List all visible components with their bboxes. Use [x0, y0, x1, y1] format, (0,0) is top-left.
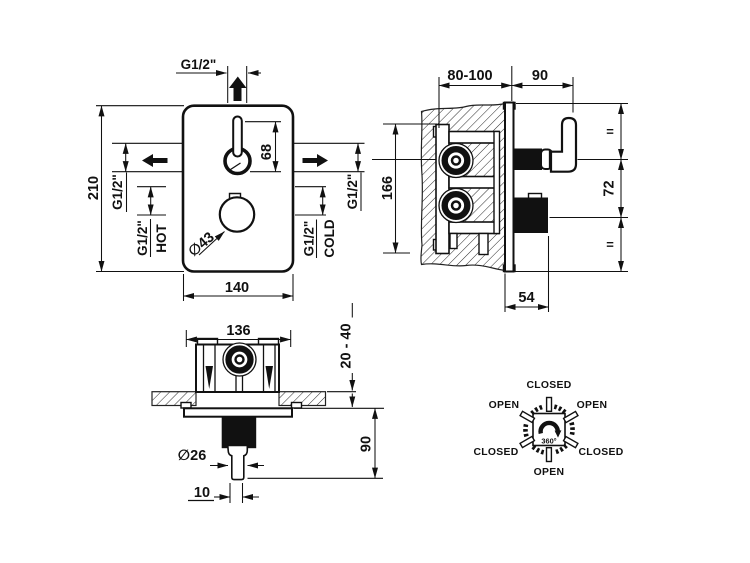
dim-knob-proj: 54 [518, 290, 534, 306]
dial-label-n: CLOSED [526, 380, 571, 391]
handle-base [513, 149, 542, 171]
dial-arc [525, 423, 526, 437]
dim-adjust-range: 20 - 40 [339, 323, 355, 368]
bottom-view: 136 ∅26 10 20 - 40 90 [152, 303, 384, 503]
frame-rail [449, 222, 499, 234]
dim-right-port: G1/2" [345, 174, 360, 210]
dim-left-supply: G1/2" [135, 220, 150, 256]
wall-band-right [279, 392, 326, 406]
frame-foot [450, 234, 457, 249]
lever-handle-side [551, 118, 576, 172]
dial-arc [554, 407, 566, 414]
technical-drawing: G1/2" 68 ∅43 210 140 G1/2" [0, 0, 750, 563]
dial-arc [554, 446, 566, 453]
port-center [236, 356, 244, 364]
dim-equal-bottom: = [606, 237, 614, 252]
dial-arc [572, 423, 573, 437]
flow-left-arrow-icon [142, 154, 168, 167]
supply-connection-bottom [439, 189, 473, 223]
spout-stem [228, 446, 248, 480]
dim-height: 210 [86, 176, 102, 200]
dim-axis-spacing: 72 [602, 180, 618, 196]
connection-center [452, 202, 460, 210]
dim-proj: 90 [359, 436, 375, 452]
side-view: 80-100 90 166 = 72 = 54 [372, 66, 628, 312]
frame-rail [449, 132, 499, 144]
dim-body-height: 166 [380, 176, 396, 200]
flange-ear [181, 403, 191, 409]
dim-tip-width: 10 [194, 485, 210, 501]
rotation-dial: 360° CLOSED OPEN OPEN CLOSED CLOSED OPEN [473, 380, 623, 478]
thermostat-knob [515, 198, 549, 234]
dial-spoke [547, 398, 552, 412]
dim-top-port: G1/2" [181, 57, 217, 72]
frame-upright [494, 132, 500, 234]
dim-spout-dia: ∅26 [178, 448, 207, 464]
cover-flange [184, 408, 292, 416]
connection-center [452, 157, 460, 165]
spout-body [222, 417, 257, 449]
front-view: G1/2" 68 ∅43 210 140 G1/2" [86, 57, 365, 301]
wall-plate [505, 103, 514, 272]
label-hot: HOT [154, 224, 169, 253]
dial-spoke [547, 448, 552, 462]
dim-left-port: G1/2" [110, 174, 125, 210]
lever-handle [233, 117, 242, 157]
volume-knob [220, 197, 254, 231]
supply-connection-top [439, 144, 473, 178]
mounting-bar [436, 125, 449, 254]
flange-ear [292, 403, 302, 409]
flow-right-arrow-icon [303, 154, 329, 167]
dial-arc [532, 407, 544, 414]
dim-equal-top: = [606, 124, 614, 139]
label-cold: COLD [322, 219, 337, 257]
dim-width: 140 [225, 280, 249, 296]
dim-depth-range: 80-100 [447, 68, 492, 84]
dim-right-supply: G1/2" [302, 221, 317, 257]
drawing-page: G1/2" 68 ∅43 210 140 G1/2" [0, 0, 750, 563]
frame-foot [479, 234, 488, 255]
dial-label-se: CLOSED [578, 447, 623, 458]
cartridge-port [223, 343, 256, 376]
dial-label-nw: OPEN [489, 400, 520, 411]
dial-arc [532, 446, 544, 453]
dial-label-sw: CLOSED [473, 447, 518, 458]
flow-up-arrow-icon [229, 77, 247, 102]
dial-rotation-label: 360° [541, 437, 556, 446]
dial-label-ne: OPEN [577, 400, 608, 411]
dim-handle-proj: 90 [532, 68, 548, 84]
frame-rail [449, 177, 499, 189]
dim-box-width: 136 [226, 323, 250, 339]
dim-lever-travel: 68 [259, 144, 275, 160]
dial-label-s: OPEN [534, 467, 565, 478]
